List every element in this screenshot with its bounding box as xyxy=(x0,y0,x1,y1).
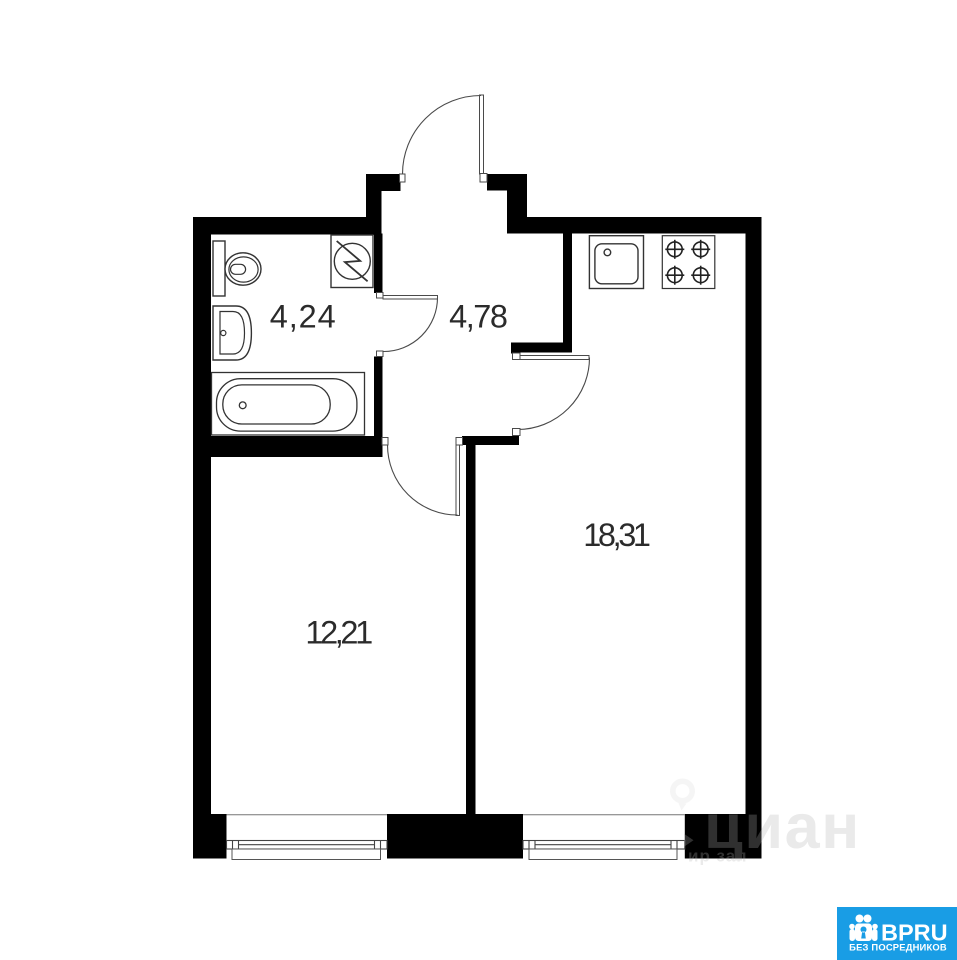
svg-text:12,21: 12,21 xyxy=(305,615,372,651)
svg-text:ир зап: ир зап xyxy=(688,847,748,866)
svg-text:4,24: 4,24 xyxy=(270,299,337,335)
svg-text:18,31: 18,31 xyxy=(583,517,650,553)
svg-text:4,78: 4,78 xyxy=(449,299,507,335)
svg-text:БЕЗ ПОСРЕДНИКОВ: БЕЗ ПОСРЕДНИКОВ xyxy=(849,942,947,953)
